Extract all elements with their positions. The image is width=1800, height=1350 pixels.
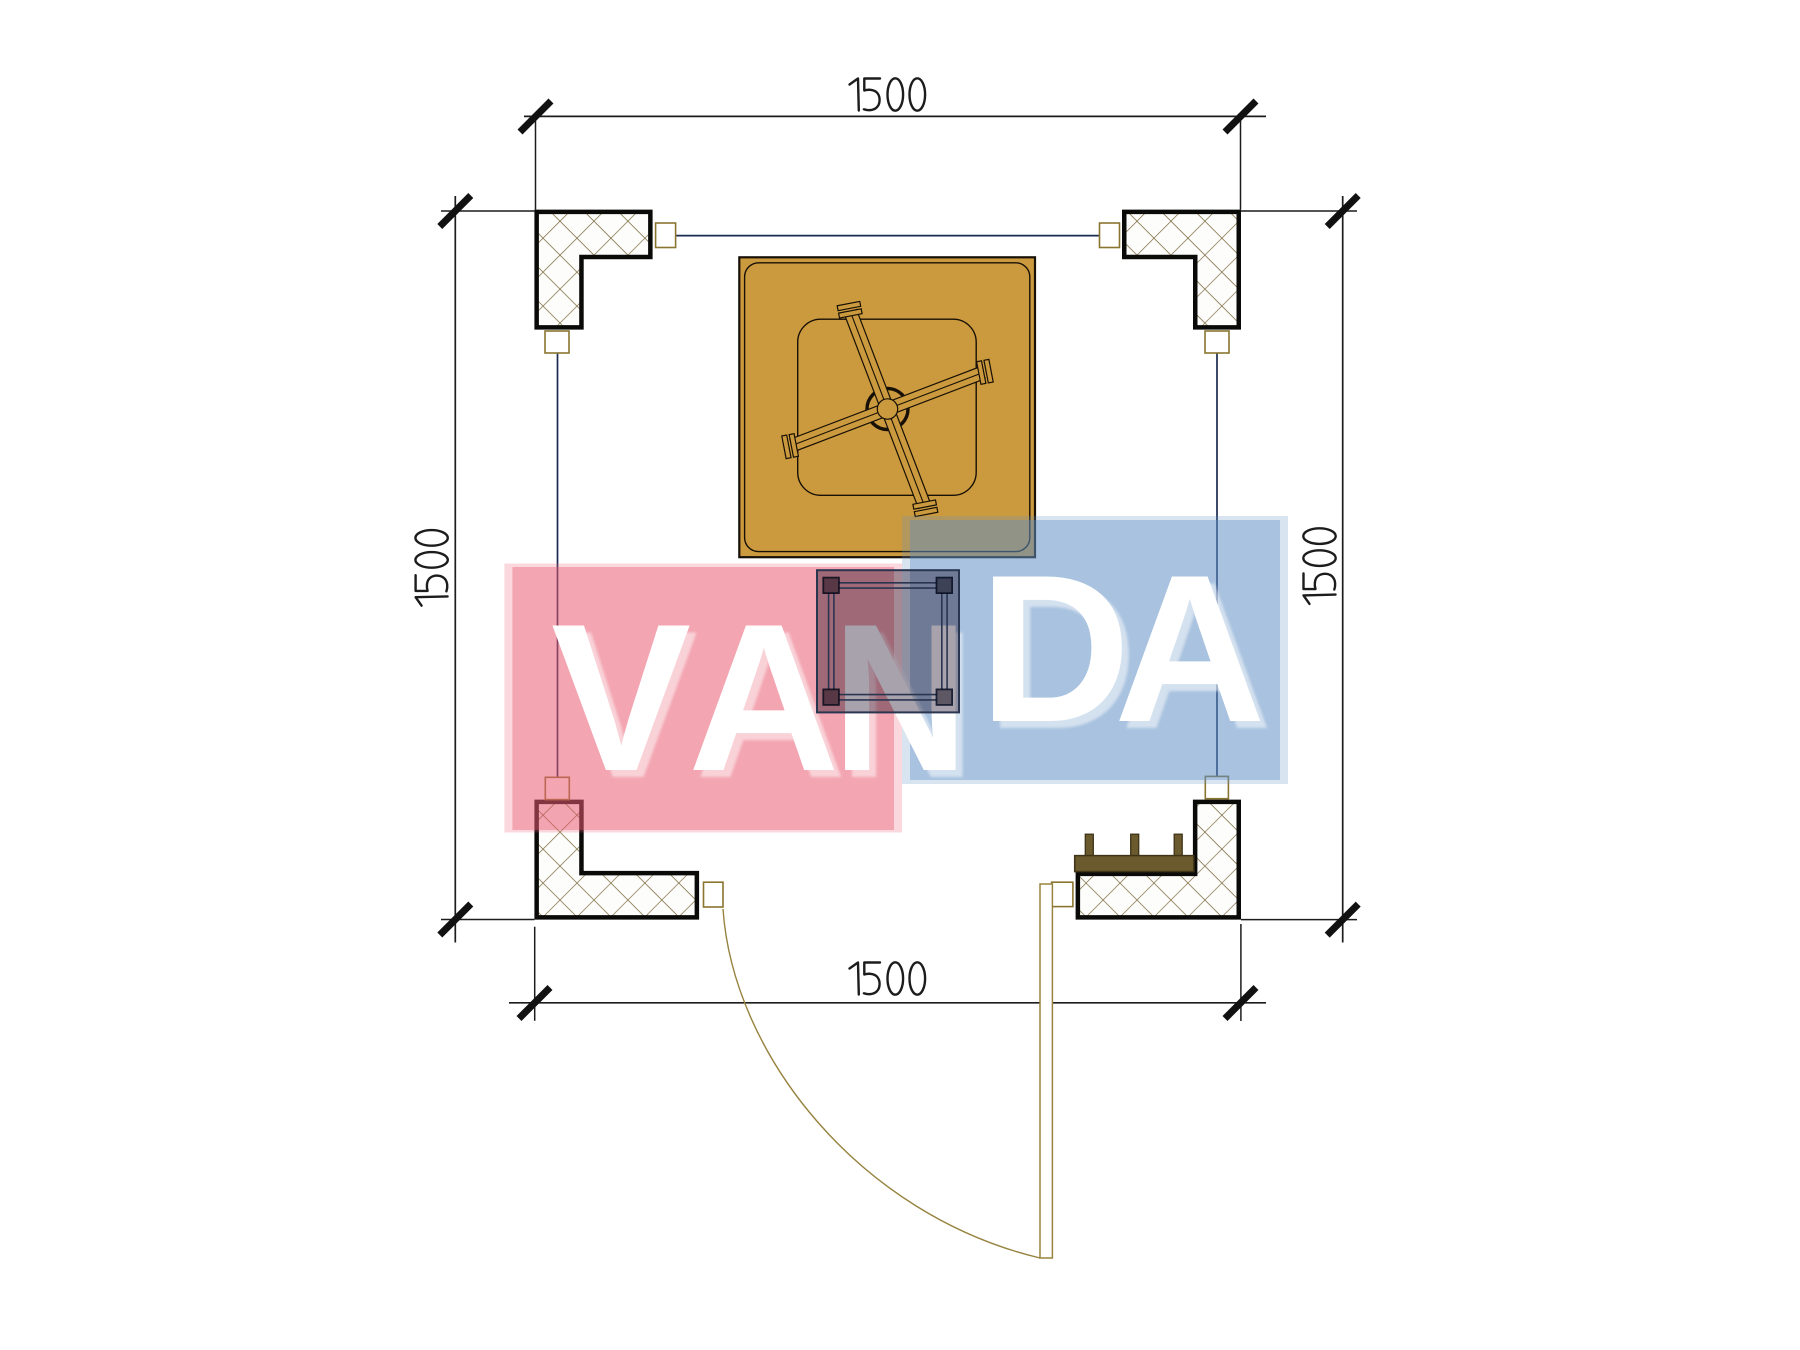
svg-text:D: D xyxy=(979,531,1131,766)
svg-text:V: V xyxy=(551,580,691,815)
svg-text:A: A xyxy=(1114,531,1266,766)
